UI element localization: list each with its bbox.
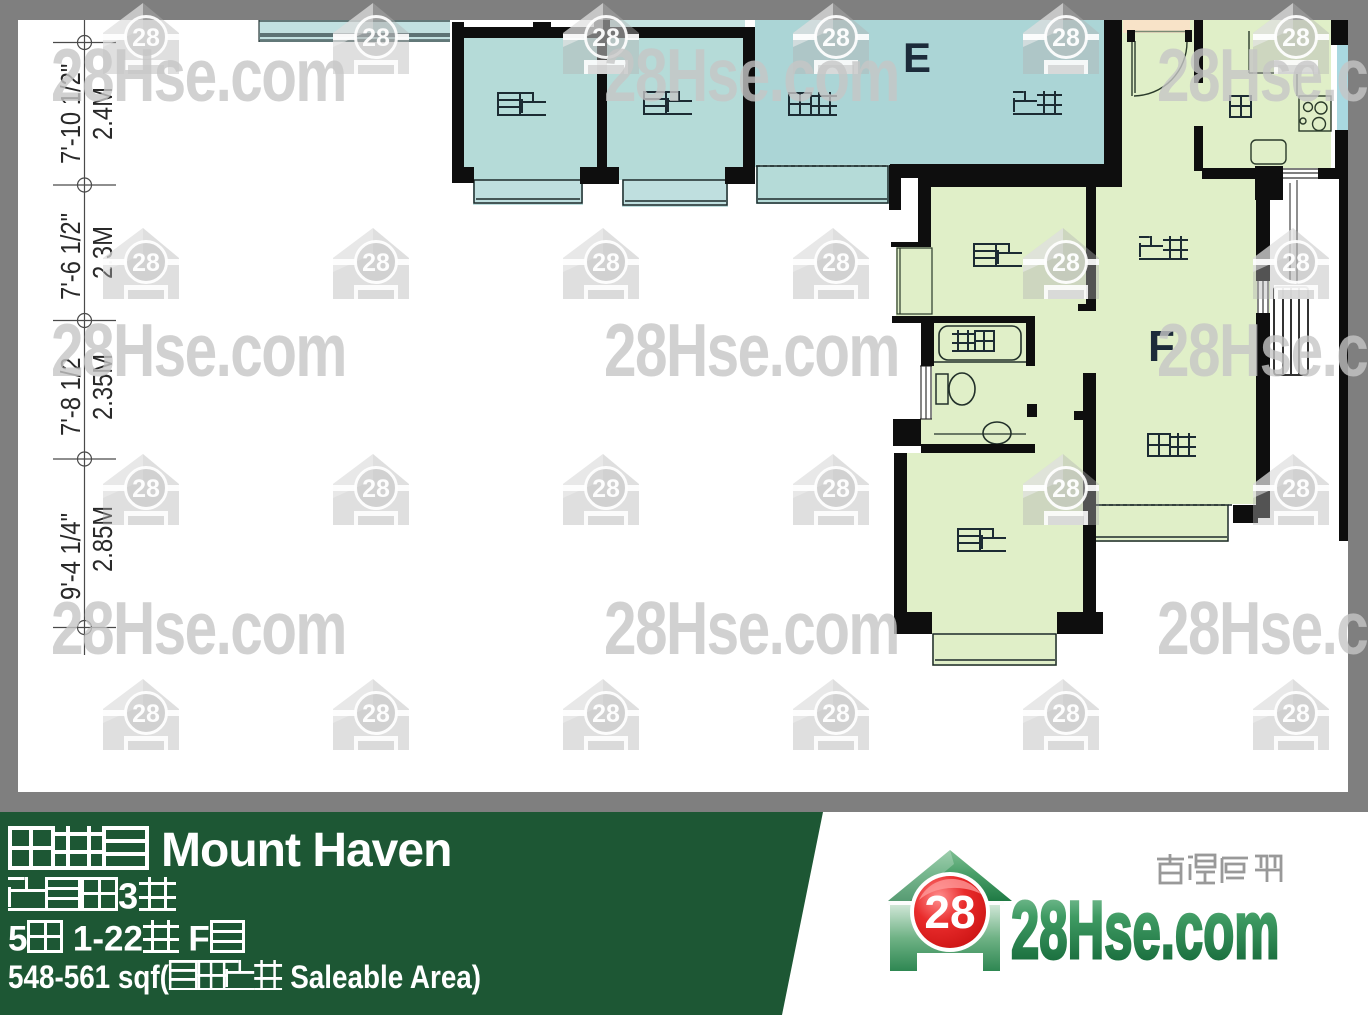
svg-text:28: 28	[924, 886, 975, 938]
svg-text:28Hse.com: 28Hse.com	[1011, 885, 1279, 976]
